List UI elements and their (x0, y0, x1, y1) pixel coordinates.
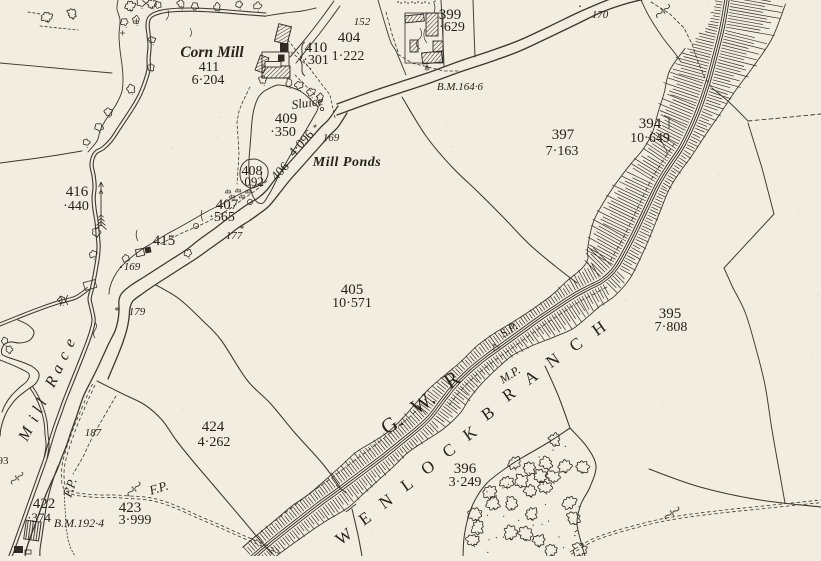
svg-text:169: 169 (124, 261, 141, 273)
svg-text:416: 416 (66, 184, 89, 200)
svg-text:·350: ·350 (270, 125, 296, 140)
svg-text:·301: ·301 (303, 53, 329, 68)
svg-text:424: 424 (202, 419, 225, 435)
svg-text:10·649: 10·649 (630, 131, 670, 146)
svg-text:187: 187 (85, 427, 102, 439)
svg-text:·092: ·092 (240, 174, 264, 189)
svg-text:B.M.192·4: B.M.192·4 (54, 516, 104, 530)
svg-text:·565: ·565 (209, 210, 235, 225)
svg-text:4·262: 4·262 (198, 435, 231, 450)
svg-text:3·249: 3·249 (449, 475, 482, 490)
svg-text:170: 170 (592, 9, 609, 21)
svg-text:10·571: 10·571 (332, 296, 372, 311)
svg-text:93: 93 (0, 455, 9, 467)
svg-text:Corn Mill: Corn Mill (180, 44, 244, 61)
svg-text:7·808: 7·808 (655, 320, 688, 335)
svg-text:*: * (115, 306, 120, 317)
svg-text:7·163: 7·163 (546, 144, 579, 159)
svg-text:·: · (578, 0, 583, 15)
svg-text:·374: ·374 (27, 510, 51, 525)
svg-text:*: * (240, 224, 245, 234)
svg-text:·629: ·629 (439, 20, 465, 35)
svg-text:404: 404 (338, 30, 361, 46)
svg-text:152: 152 (354, 16, 371, 28)
svg-text:397: 397 (552, 127, 575, 143)
svg-text:·440: ·440 (63, 199, 89, 214)
svg-text:1·222: 1·222 (332, 49, 365, 64)
svg-text:179: 179 (129, 306, 146, 318)
svg-text:6·204: 6·204 (192, 73, 225, 88)
svg-text:B.M.164·6: B.M.164·6 (437, 81, 484, 93)
svg-text:Mill Ponds: Mill Ponds (312, 155, 381, 170)
svg-text:415: 415 (153, 233, 176, 249)
svg-text:3·999: 3·999 (119, 513, 152, 528)
svg-text:169: 169 (323, 132, 340, 144)
svg-text:394: 394 (639, 116, 662, 132)
